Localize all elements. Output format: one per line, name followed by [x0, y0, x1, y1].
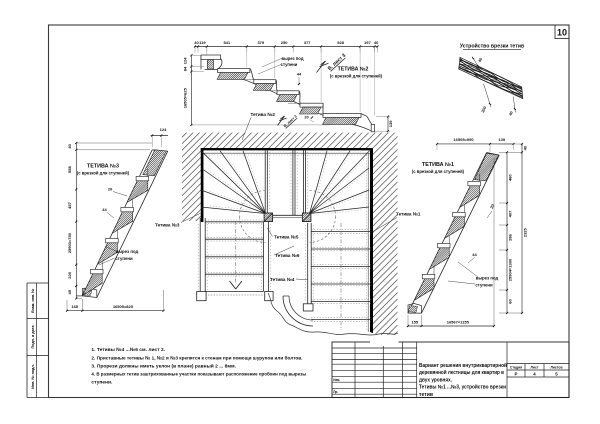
svg-text:44: 44 — [297, 72, 302, 77]
svg-text:Инв. № подл.: Инв. № подл. — [31, 364, 35, 388]
svg-text:44: 44 — [102, 207, 107, 212]
svg-text:139: 139 — [388, 120, 393, 127]
svg-text:407: 407 — [508, 210, 513, 217]
svg-text:ступени: ступени — [115, 256, 133, 261]
svg-text:49: 49 — [67, 289, 72, 294]
svg-text:Тетива №3: Тетива №3 — [155, 222, 180, 227]
svg-text:Лр.: Лр. — [333, 390, 338, 394]
svg-text:379: 379 — [257, 40, 264, 45]
svg-text:25904=1300: 25904=1300 — [508, 258, 513, 281]
svg-text:457: 457 — [67, 201, 72, 208]
svg-text:Тетива №2: Тетива №2 — [251, 112, 276, 117]
svg-text:Тетива №1: Тетива №1 — [396, 212, 421, 217]
svg-text:деревянной лестницы для кварти: деревянной лестницы для квартир в — [419, 369, 504, 376]
svg-text:Лист: Лист — [530, 366, 538, 370]
svg-text:40: 40 — [523, 145, 528, 150]
svg-text:44: 44 — [472, 252, 477, 257]
svg-text:250: 250 — [281, 40, 288, 45]
svg-text:124: 124 — [160, 127, 167, 132]
svg-text:197: 197 — [364, 40, 371, 45]
svg-text:ступени.: ступени. — [91, 381, 113, 386]
svg-text:ступени: ступени — [475, 283, 493, 288]
svg-text:ТЕТИВА №3: ТЕТИВА №3 — [87, 164, 119, 170]
svg-text:(с врезкой для ступеней): (с врезкой для ступеней) — [412, 169, 465, 174]
svg-text:вырез под: вырез под — [116, 249, 139, 254]
svg-text:16567=1155: 16567=1155 — [447, 319, 470, 324]
svg-text:ступени: ступени — [281, 62, 298, 67]
svg-text:286: 286 — [508, 233, 513, 240]
svg-text:ТЕТИВА №2: ТЕТИВА №2 — [338, 67, 369, 73]
svg-text:40: 40 — [67, 143, 72, 148]
svg-text:558: 558 — [67, 165, 72, 172]
svg-text:84: 84 — [183, 66, 188, 71]
svg-text:16505=990: 16505=990 — [453, 137, 474, 142]
svg-text:Тетивы №1 ...№3, устройство вр: Тетивы №1 ...№3, устройство врезки — [419, 384, 506, 391]
svg-text:(с врезкой для ступеней): (с врезкой для ступеней) — [330, 74, 383, 79]
svg-text:Стадия: Стадия — [510, 366, 522, 370]
svg-text:40: 40 — [374, 40, 379, 45]
svg-text:16505=825: 16505=825 — [113, 304, 134, 309]
svg-text:124: 124 — [183, 57, 188, 64]
svg-text:20: 20 — [304, 116, 308, 120]
svg-text:165: 165 — [71, 304, 78, 309]
svg-text:Изм.: Изм. — [333, 378, 340, 382]
svg-text:Взам. инв. №: Взам. инв. № — [31, 289, 35, 313]
svg-text:2325: 2325 — [523, 227, 528, 237]
svg-text:тетив: тетив — [419, 392, 433, 398]
svg-text:2. Приставные тетивы № 1, №2 и: 2. Приставные тетивы № 1, №2 и №3 крепят… — [91, 354, 302, 360]
svg-text:(с врезкой для ступеней): (с врезкой для ступеней) — [77, 171, 130, 176]
svg-text:139: 139 — [498, 137, 505, 142]
svg-text:вырез под: вырез под — [282, 56, 304, 61]
svg-text:Листов: Листов — [550, 366, 562, 370]
svg-text:541: 541 — [223, 40, 230, 45]
svg-text:155: 155 — [411, 319, 418, 324]
svg-text:4. В размерных тетив заштрихов: 4. В размерных тетив заштрихованные учас… — [91, 371, 306, 377]
svg-text:220: 220 — [67, 271, 72, 278]
svg-text:Подп. и дата: Подп. и дата — [31, 325, 35, 349]
svg-text:Тетива №6: Тетива №6 — [275, 253, 300, 258]
svg-text:60: 60 — [508, 299, 513, 304]
svg-text:двух уровнях.: двух уровнях. — [419, 377, 452, 383]
svg-text:Вариант решения внутриквартирн: Вариант решения внутриквартирной — [419, 362, 507, 369]
svg-text:1. Тетивы №4 ...№6 см. лист 2.: 1. Тетивы №4 ...№6 см. лист 2. — [91, 347, 165, 353]
svg-text:119: 119 — [199, 40, 206, 45]
svg-text:10: 10 — [557, 28, 567, 38]
svg-text:вырез под: вырез под — [476, 276, 499, 281]
svg-text:460: 460 — [508, 174, 513, 181]
svg-text:377: 377 — [304, 40, 311, 45]
svg-text:Устройство врезки тетив: Устройство врезки тетив — [460, 43, 524, 50]
svg-text:16505=625: 16505=625 — [183, 87, 188, 108]
svg-text:20: 20 — [108, 186, 113, 191]
svg-text:ТЕТИВА №1: ТЕТИВА №1 — [422, 162, 454, 168]
svg-text:25903=750: 25903=750 — [67, 232, 72, 253]
svg-text:528: 528 — [337, 40, 344, 45]
svg-text:Тетива №5: Тетива №5 — [274, 234, 299, 239]
svg-text:Р: Р — [515, 372, 518, 377]
svg-text:3. Прорези должны иметь уклон: 3. Прорези должны иметь уклон (в плане) … — [91, 363, 236, 370]
svg-text:Тетива №4: Тетива №4 — [270, 277, 295, 282]
